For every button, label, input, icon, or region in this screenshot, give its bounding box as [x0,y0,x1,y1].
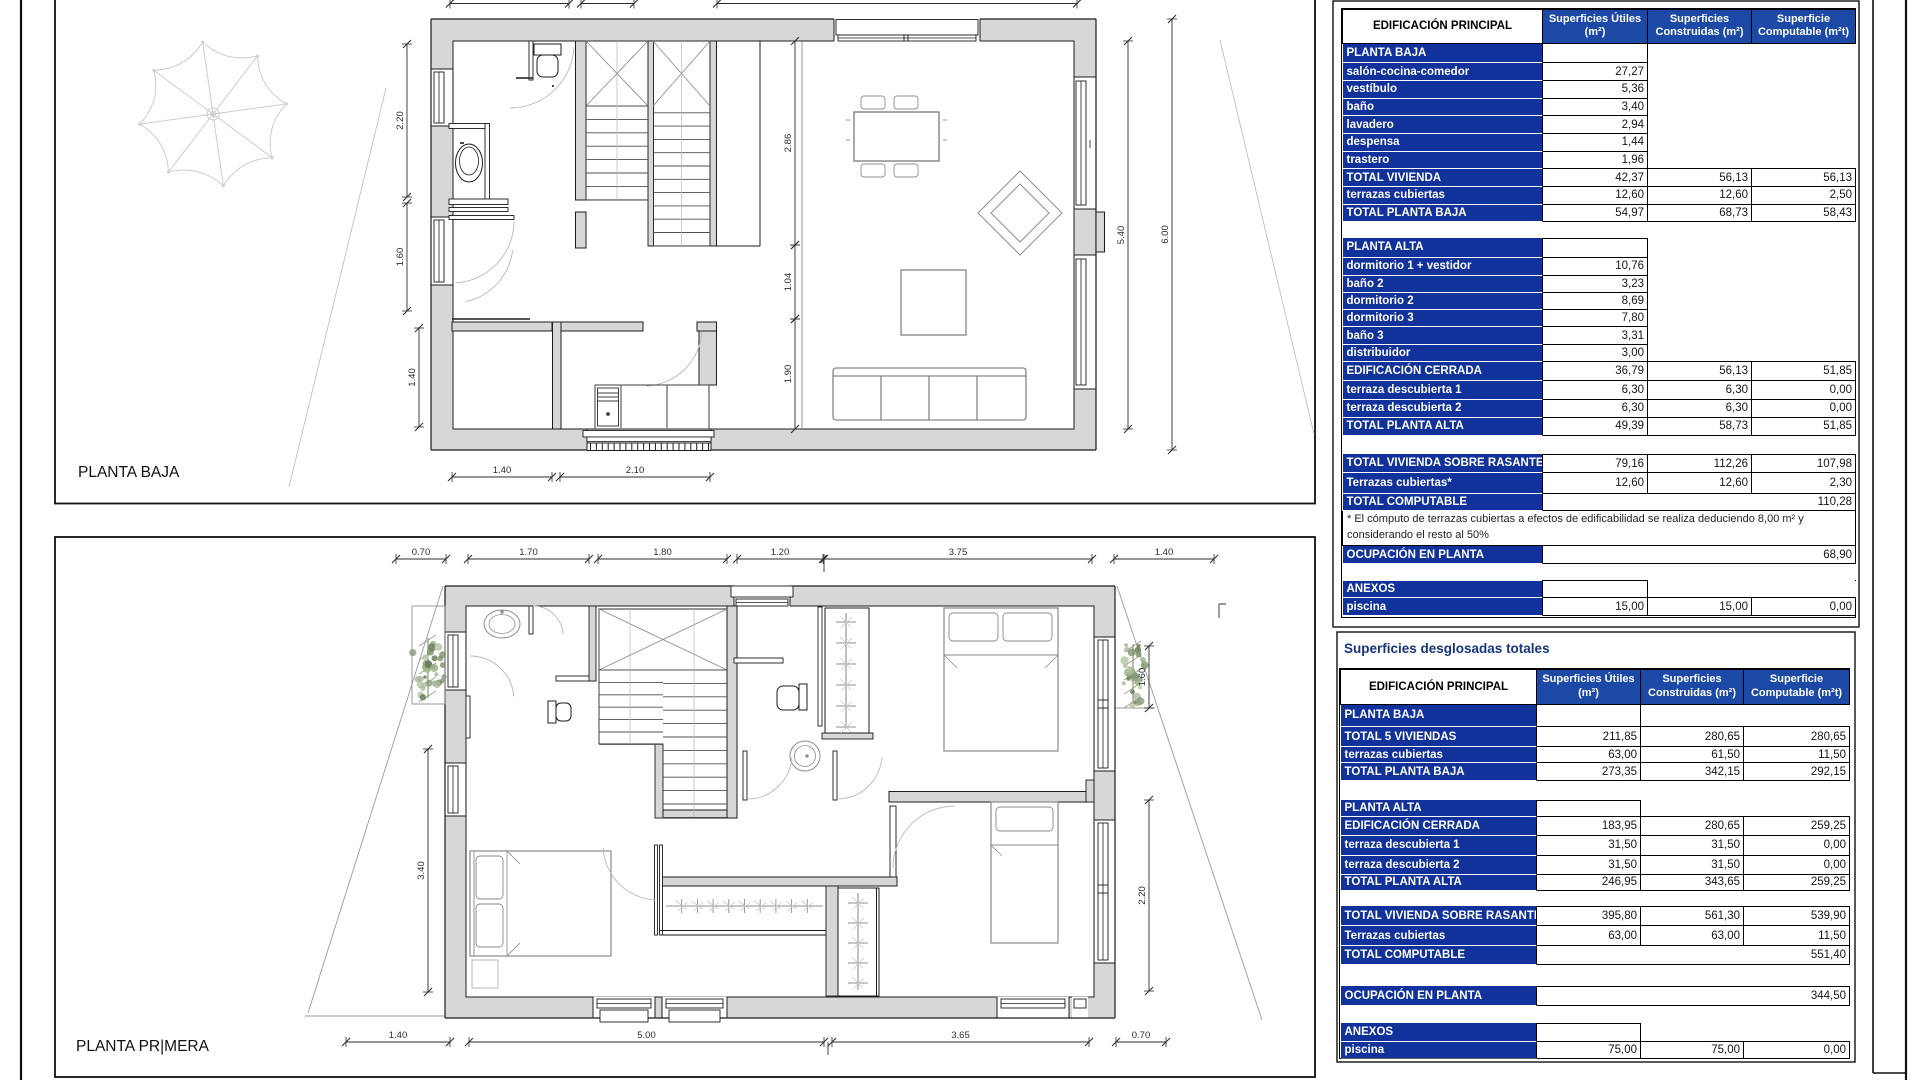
svg-text:2.20: 2.20 [1137,886,1148,905]
svg-text:6.00: 6.00 [1160,225,1171,244]
svg-text:1.60: 1.60 [1137,668,1148,687]
svg-text:5.40: 5.40 [1116,226,1127,245]
svg-text:1.70: 1.70 [519,547,538,558]
svg-text:5.00: 5.00 [637,1030,656,1041]
svg-text:PLANTA PR|MERA: PLANTA PR|MERA [76,1038,210,1055]
svg-text:0.70: 0.70 [412,547,431,558]
svg-text:1.20: 1.20 [771,547,790,558]
svg-text:1.40: 1.40 [1155,547,1174,558]
svg-text:3.40: 3.40 [416,861,427,880]
svg-text:3.75: 3.75 [949,547,968,558]
svg-text:2.20: 2.20 [395,111,406,130]
svg-text:1.80: 1.80 [653,547,672,558]
svg-text:3.65: 3.65 [951,1030,970,1041]
svg-text:2.86: 2.86 [783,134,794,153]
svg-text:1.60: 1.60 [395,248,406,267]
svg-text:PLANTA BAJA: PLANTA BAJA [78,464,180,481]
svg-text:2.10: 2.10 [626,465,645,476]
svg-text:1.90: 1.90 [783,365,794,384]
svg-text:1.40: 1.40 [389,1030,408,1041]
svg-text:1.40: 1.40 [407,368,418,387]
svg-text:0.70: 0.70 [1132,1030,1151,1041]
svg-text:1.40: 1.40 [493,465,512,476]
svg-text:1.04: 1.04 [783,273,794,292]
